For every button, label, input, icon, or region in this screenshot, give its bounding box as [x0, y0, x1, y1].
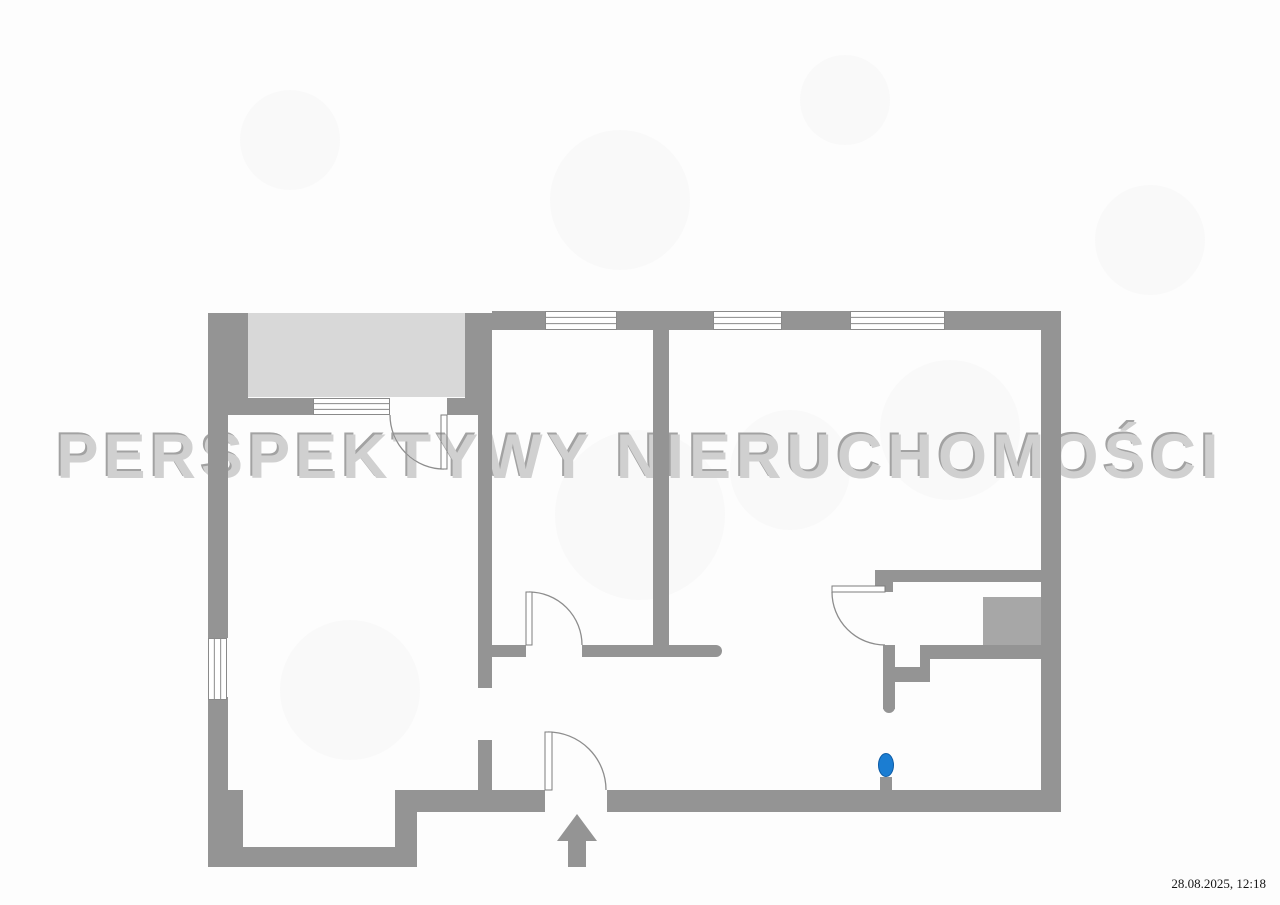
- window: [314, 399, 390, 415]
- wall-segment: [891, 667, 930, 682]
- wall-segment: [930, 645, 1041, 659]
- entrance-door-swing-arc: [548, 732, 606, 790]
- wall-segment: [478, 740, 492, 790]
- wall-segment: [417, 790, 545, 812]
- wall-segment: [607, 790, 1041, 812]
- wall-segment: [465, 313, 492, 415]
- wall-segment: [582, 645, 716, 657]
- wall-segment: [208, 313, 248, 398]
- wall-end-cap: [710, 645, 722, 657]
- window: [714, 312, 782, 330]
- wall-segment: [782, 311, 850, 330]
- entrance-arrow-icon: [557, 814, 597, 867]
- watermark-text: PERSPEKTYWY NIERUCHOMOŚCI: [0, 421, 1280, 493]
- wall-segment: [208, 847, 417, 867]
- scanned-floorplan-page: PERSPEKTYWY NIERUCHOMOŚCI 28.08.2025, 12…: [0, 0, 1280, 905]
- balcony-area: [248, 313, 465, 397]
- window: [851, 312, 945, 330]
- location-pin-icon: [879, 754, 894, 777]
- wall-segment: [875, 570, 1041, 582]
- kitchen-door-swing-arc: [832, 592, 885, 645]
- entrance-door-leaf: [545, 732, 552, 790]
- shaft-area: [983, 597, 1041, 648]
- wall-segment: [617, 311, 713, 330]
- wall-segment: [228, 398, 313, 415]
- wall-segment: [208, 697, 228, 847]
- wall-segment: [1041, 311, 1061, 812]
- window: [546, 312, 617, 330]
- kitchen-door-leaf: [832, 586, 885, 592]
- wall-segment: [478, 645, 526, 657]
- wall-end-cap: [883, 701, 895, 713]
- wall-segment: [880, 777, 892, 791]
- wall-segment: [492, 311, 545, 330]
- timestamp: 28.08.2025, 12:18: [1171, 876, 1266, 892]
- room-door-leaf: [526, 592, 532, 645]
- wall-segment: [447, 398, 465, 415]
- window: [209, 639, 227, 700]
- room-door-swing-arc: [529, 592, 582, 645]
- wall-segment: [920, 645, 930, 669]
